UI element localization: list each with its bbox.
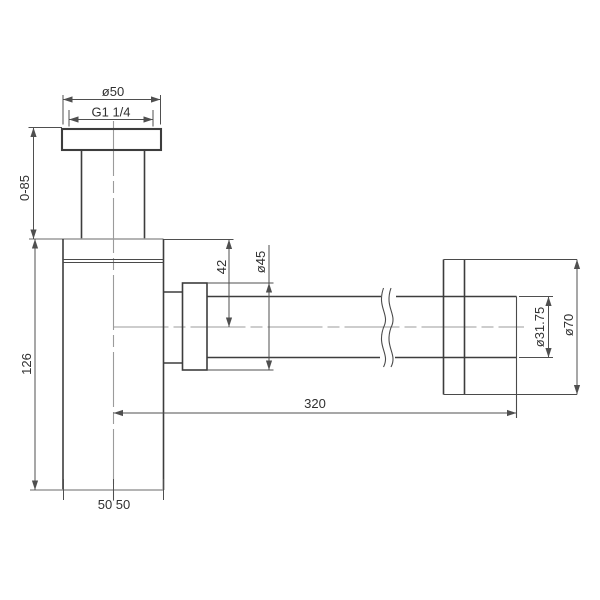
dim-label-outlet-drop: 42 xyxy=(214,260,229,274)
technical-drawing-canvas: ø50 G1 1/4 0-85 126 42 ø45 ø31.75 xyxy=(0,0,600,600)
dim-label-outlet-pipe-diameter: ø31.75 xyxy=(532,307,547,347)
dim-label-outlet-length: 320 xyxy=(304,396,326,411)
dim-label-body-height: 126 xyxy=(19,353,34,375)
dim-label-inlet-thread: G1 1/4 xyxy=(91,105,130,120)
bottle-trap-drawing: ø50 G1 1/4 0-85 126 42 ø45 ø31.75 xyxy=(0,0,600,600)
dim-label-inlet-height-range: 0-85 xyxy=(17,175,32,201)
paper-background xyxy=(0,0,600,600)
dim-label-top-flange-diameter: ø50 xyxy=(102,84,124,99)
dim-label-nut-diameter: ø45 xyxy=(253,251,268,273)
dim-label-base-widths: 50 50 xyxy=(98,497,131,512)
dim-label-wall-flange-diameter: ø70 xyxy=(561,314,576,336)
